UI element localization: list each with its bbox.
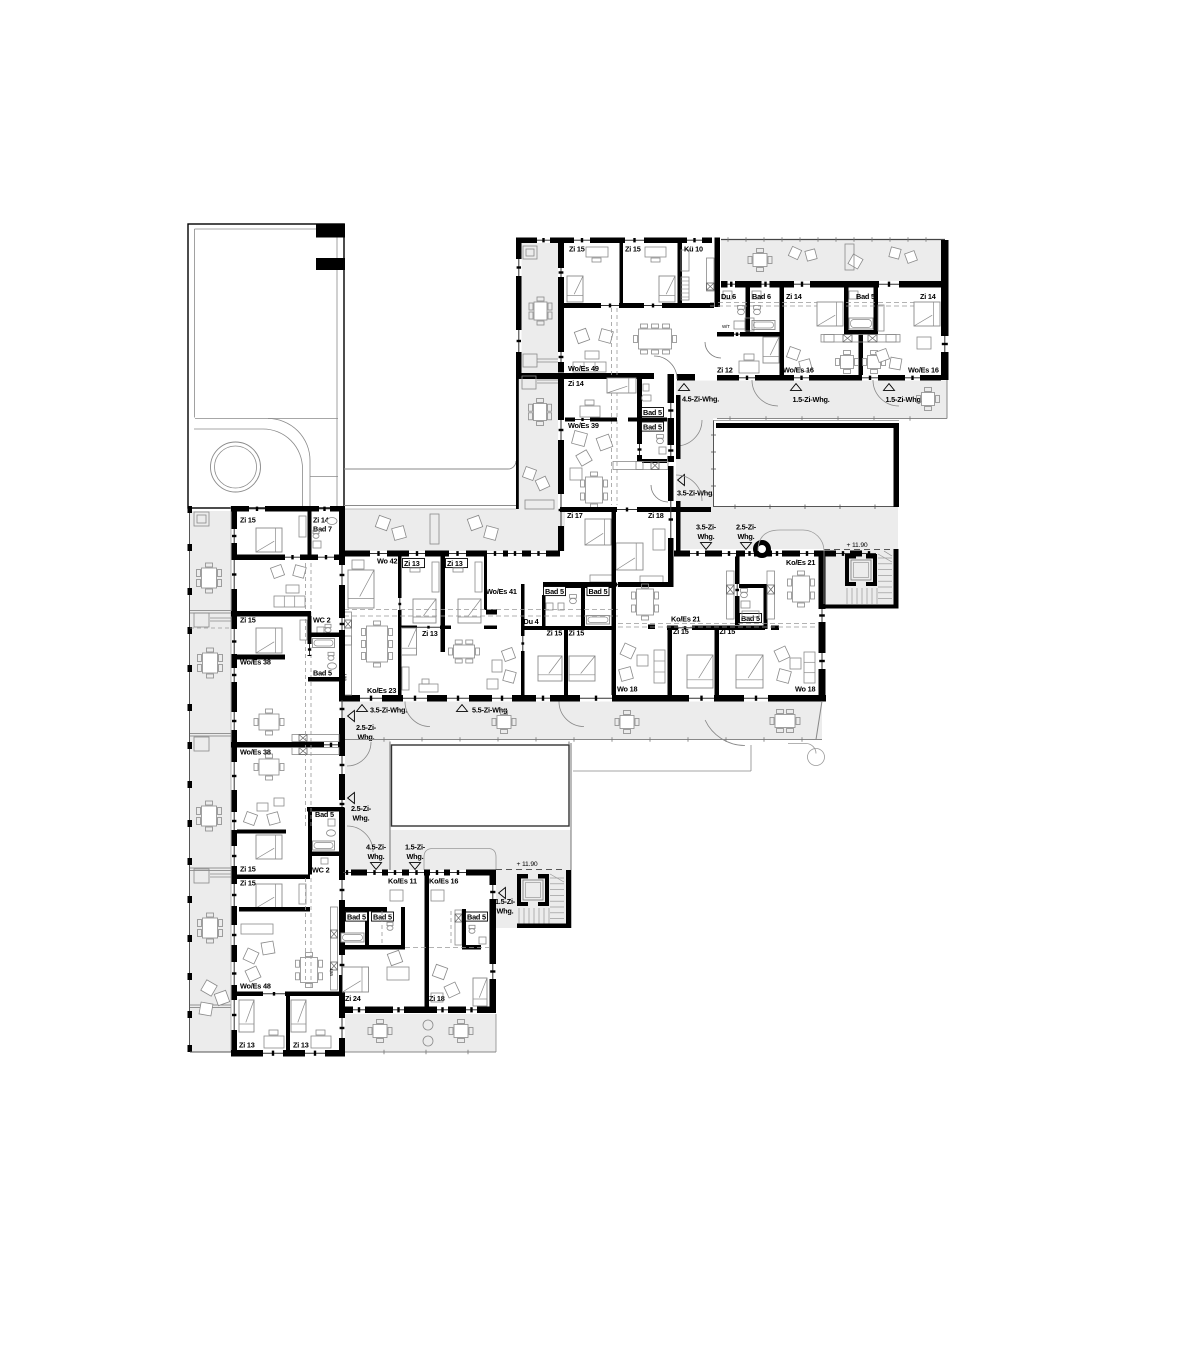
svg-text:4.5-Zi-: 4.5-Zi-	[366, 843, 387, 852]
svg-text:Zi 24: Zi 24	[345, 994, 362, 1003]
svg-text:Bad 5: Bad 5	[373, 913, 392, 922]
svg-text:Whg.: Whg.	[357, 733, 374, 742]
svg-text:Whg.: Whg.	[367, 852, 384, 861]
svg-text:Bad 5: Bad 5	[315, 810, 334, 819]
svg-text:Zi 12: Zi 12	[717, 366, 733, 375]
svg-text:Wo/Es 41: Wo/Es 41	[486, 587, 517, 596]
svg-text:Whg.: Whg.	[352, 814, 369, 823]
svg-text:Zi 15: Zi 15	[673, 627, 689, 636]
svg-text:W/T: W/T	[329, 968, 334, 976]
svg-text:Wo/Es 16: Wo/Es 16	[783, 366, 814, 375]
svg-text:3.5-Zi-: 3.5-Zi-	[696, 523, 717, 532]
svg-text:1.5-Zi-: 1.5-Zi-	[405, 843, 426, 852]
svg-text:Zi 13: Zi 13	[293, 1041, 309, 1050]
svg-text:Bad 5: Bad 5	[643, 408, 662, 417]
svg-text:Ko/Es 21: Ko/Es 21	[671, 615, 700, 624]
svg-text:Zi 15: Zi 15	[569, 245, 585, 254]
svg-text:WC 2: WC 2	[312, 866, 330, 875]
svg-text:Zi 13: Zi 13	[239, 1041, 255, 1050]
svg-text:Bad 6: Bad 6	[752, 292, 771, 301]
svg-text:Zi 15: Zi 15	[625, 245, 641, 254]
svg-text:3.5-Zi-Whg.: 3.5-Zi-Whg.	[677, 489, 714, 498]
svg-text:4.5-Zi-Whg.: 4.5-Zi-Whg.	[682, 395, 719, 404]
svg-text:Wo/Es 39: Wo/Es 39	[568, 421, 599, 430]
svg-text:5.5-Zi-Whg: 5.5-Zi-Whg	[472, 706, 507, 715]
svg-text:Kü 10: Kü 10	[684, 245, 703, 254]
svg-text:Du 4: Du 4	[524, 617, 540, 626]
svg-text:Ko/Es 21: Ko/Es 21	[786, 558, 815, 567]
svg-text:Wo 18: Wo 18	[795, 685, 815, 694]
svg-text:Bad 7: Bad 7	[313, 525, 332, 534]
svg-text:Bad 5: Bad 5	[643, 423, 662, 432]
svg-text:Zi 13: Zi 13	[447, 559, 463, 568]
svg-text:Whg.: Whg.	[697, 532, 714, 541]
svg-text:Zi 15: Zi 15	[720, 627, 736, 636]
svg-text:+ 11.90: + 11.90	[847, 542, 868, 549]
svg-text:Zi 15: Zi 15	[240, 516, 256, 525]
svg-text:Zi 15: Zi 15	[240, 879, 256, 888]
svg-text:Wo/Es 38: Wo/Es 38	[240, 658, 271, 667]
svg-text:2.5-Zi-: 2.5-Zi-	[356, 723, 377, 732]
svg-text:Whg.: Whg.	[406, 852, 423, 861]
svg-text:Zi 18: Zi 18	[648, 511, 664, 520]
svg-text:Zi 14: Zi 14	[786, 292, 803, 301]
svg-text:WC 2: WC 2	[313, 616, 331, 625]
svg-text:Du 6: Du 6	[721, 292, 736, 301]
svg-text:W/T: W/T	[722, 324, 730, 329]
svg-text:Bad 5: Bad 5	[467, 913, 486, 922]
svg-text:Whg.: Whg.	[496, 907, 513, 916]
svg-text:3.5-Zi-Whg.: 3.5-Zi-Whg.	[370, 706, 407, 715]
svg-text:Wo/Es 38: Wo/Es 38	[240, 748, 271, 757]
svg-text:Bad 5: Bad 5	[545, 587, 564, 596]
svg-text:Whg.: Whg.	[737, 532, 754, 541]
svg-text:Wo 42: Wo 42	[377, 557, 397, 566]
svg-text:Wo 18: Wo 18	[617, 685, 637, 694]
svg-text:Ko/Es 11: Ko/Es 11	[388, 877, 417, 886]
svg-text:2.5-Zi-: 2.5-Zi-	[351, 804, 372, 813]
svg-text:Zi 17: Zi 17	[567, 511, 583, 520]
svg-text:Bad 5: Bad 5	[589, 587, 608, 596]
svg-text:Zi 15: Zi 15	[240, 616, 256, 625]
svg-text:Wo/Es 49: Wo/Es 49	[568, 364, 599, 373]
svg-text:Zi 14: Zi 14	[568, 379, 585, 388]
svg-text:Bad 5: Bad 5	[741, 614, 760, 623]
svg-text:Zi 15: Zi 15	[547, 629, 563, 638]
svg-text:2.5-Zi-: 2.5-Zi-	[736, 523, 757, 532]
svg-text:Bad 5: Bad 5	[856, 292, 875, 301]
svg-text:Bad 5: Bad 5	[313, 669, 332, 678]
svg-text:Bad 5: Bad 5	[347, 913, 366, 922]
svg-text:1.5-Zi-Whg.: 1.5-Zi-Whg.	[792, 395, 829, 404]
svg-text:Ko/Es 23: Ko/Es 23	[367, 686, 396, 695]
svg-text:Wo/Es 48: Wo/Es 48	[240, 982, 271, 991]
svg-text:Zi 15: Zi 15	[569, 629, 585, 638]
svg-text:Zi 13: Zi 13	[422, 629, 438, 638]
svg-text:+ 11.90: + 11.90	[517, 861, 538, 868]
svg-text:Ko/Es 16: Ko/Es 16	[429, 877, 458, 886]
svg-text:Zi 15: Zi 15	[240, 865, 256, 874]
svg-text:Zi 14: Zi 14	[920, 292, 937, 301]
svg-text:Zi 13: Zi 13	[404, 559, 420, 568]
svg-text:Wo/Es 16: Wo/Es 16	[908, 366, 939, 375]
